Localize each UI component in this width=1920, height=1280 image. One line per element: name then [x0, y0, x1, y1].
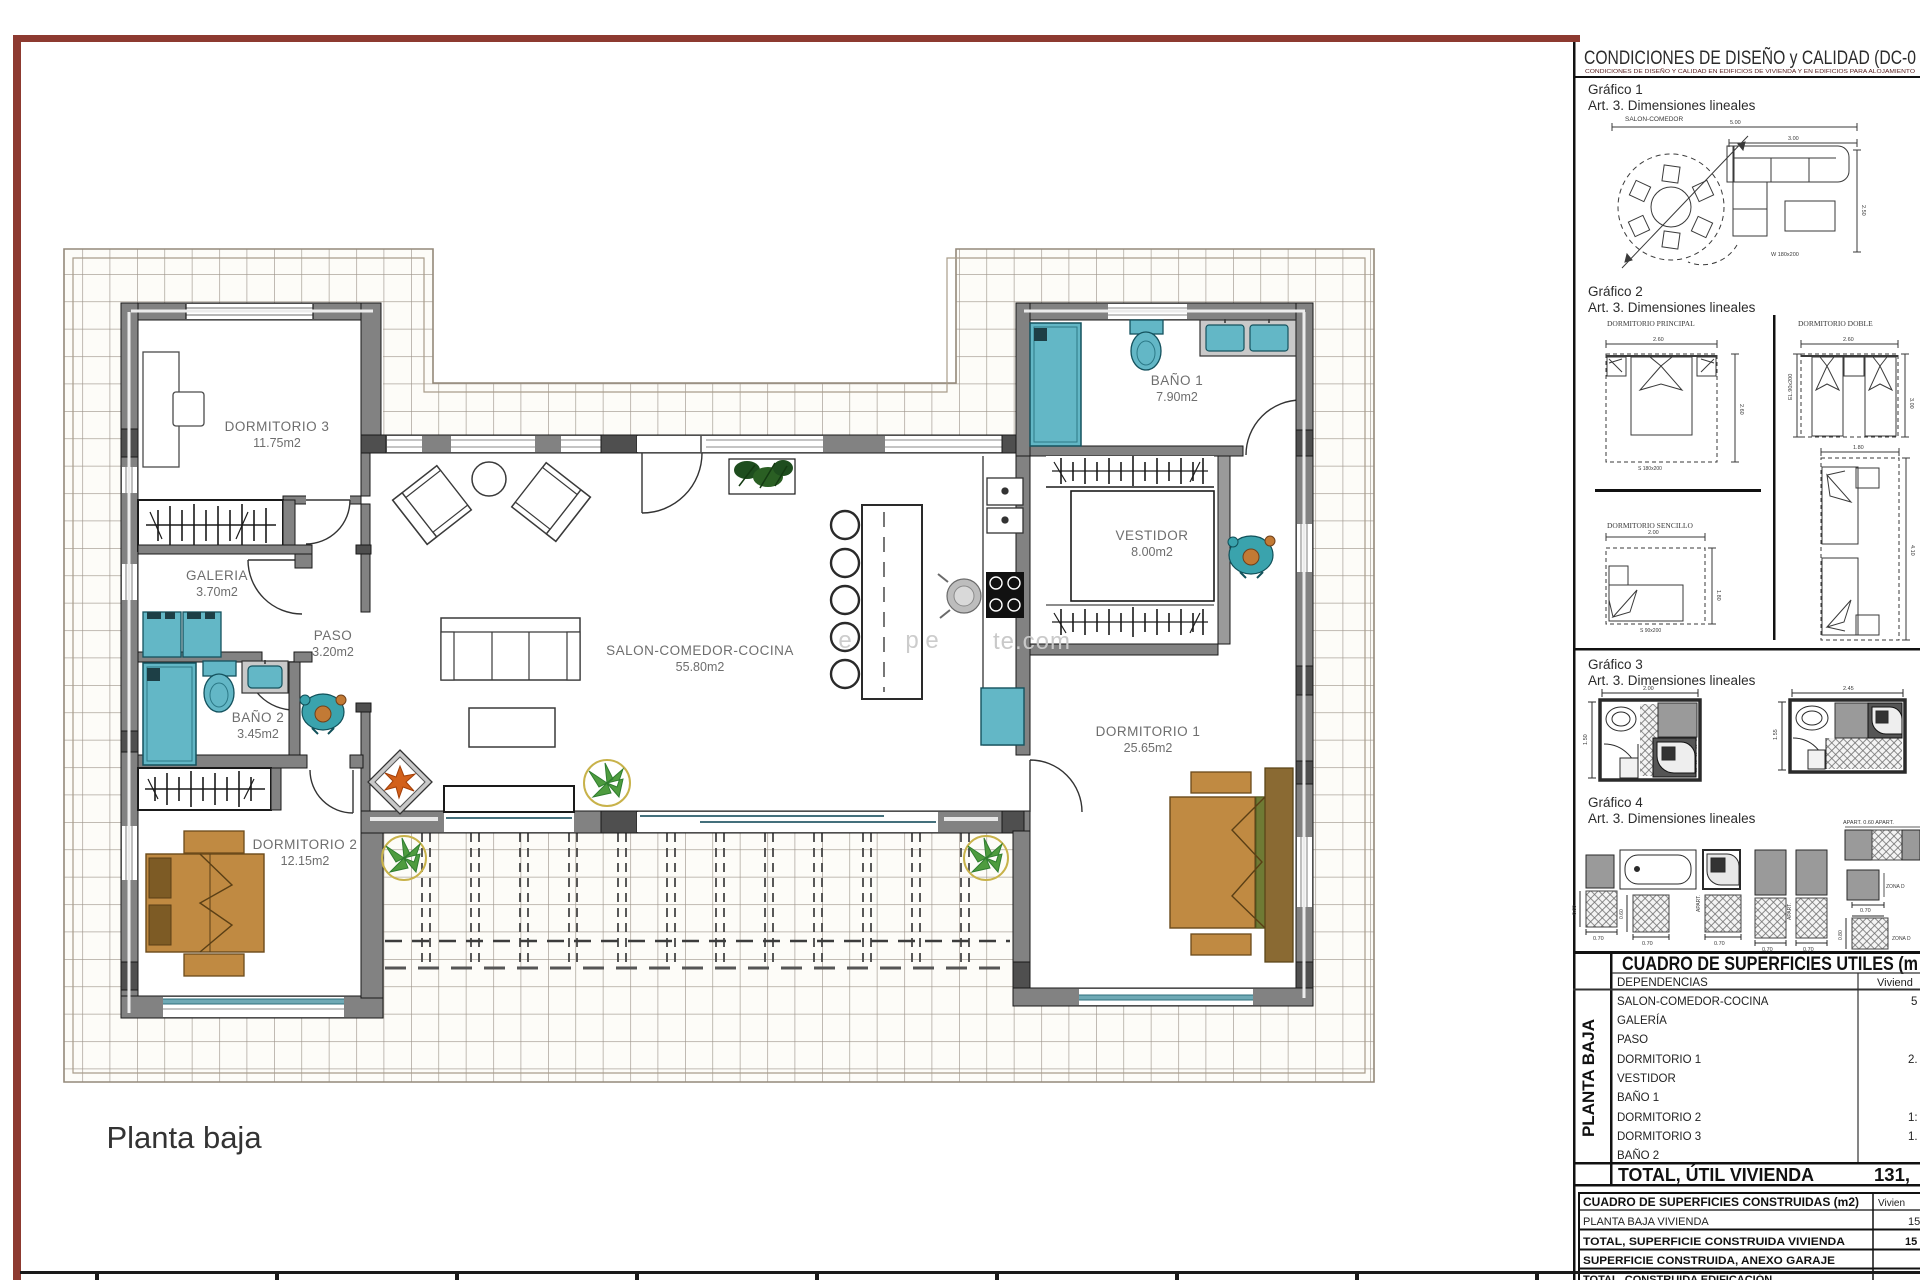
svg-text:BAÑO 1: BAÑO 1 — [1151, 373, 1204, 388]
svg-text:3.00: 3.00 — [1908, 398, 1914, 409]
svg-text:BAÑO 1: BAÑO 1 — [1617, 1091, 1659, 1104]
svg-text:TOTAL, CONSTRUIDA EDIFICACIÓN: TOTAL, CONSTRUIDA EDIFICACIÓN — [1583, 1273, 1772, 1280]
svg-text:DORMITORIO 2: DORMITORIO 2 — [253, 837, 358, 852]
svg-text:3.00: 3.00 — [1788, 136, 1799, 142]
svg-text:DEPENDENCIAS: DEPENDENCIAS — [1617, 977, 1708, 989]
svg-text:DORMITORIO SENCILLO: DORMITORIO SENCILLO — [1607, 521, 1693, 530]
svg-text:DORMITORIO 3: DORMITORIO 3 — [225, 419, 330, 434]
svg-text:APART.: APART. — [1696, 895, 1702, 912]
svg-text:e: e — [838, 627, 851, 654]
svg-text:Planta baja: Planta baja — [106, 1120, 262, 1155]
svg-text:8.00m2: 8.00m2 — [1131, 545, 1173, 559]
svg-text:1.55: 1.55 — [1773, 729, 1779, 740]
svg-text:BAÑO 2: BAÑO 2 — [232, 710, 285, 725]
svg-text:TOTAL, SUPERFICIE CONSTRUIDA V: TOTAL, SUPERFICIE CONSTRUIDA VIVIENDA — [1583, 1236, 1845, 1248]
svg-text:PLANTA BAJA VIVIENDA: PLANTA BAJA VIVIENDA — [1583, 1216, 1709, 1228]
svg-text:BAÑO 2: BAÑO 2 — [1617, 1149, 1659, 1162]
svg-text:1.: 1. — [1908, 1131, 1918, 1143]
svg-text:7.90m2: 7.90m2 — [1156, 390, 1198, 404]
svg-text:Gráfico 2: Gráfico 2 — [1588, 284, 1643, 299]
svg-text:ZONA D: ZONA D — [1886, 884, 1905, 890]
svg-text:ZONA D: ZONA D — [1892, 936, 1911, 942]
svg-text:PASO: PASO — [1617, 1034, 1648, 1046]
svg-text:25.65m2: 25.65m2 — [1124, 741, 1173, 755]
svg-text:S 180x200: S 180x200 — [1638, 466, 1662, 472]
svg-text:2.45: 2.45 — [1843, 686, 1854, 692]
svg-text:4.10: 4.10 — [1909, 545, 1915, 556]
svg-text:0.60: 0.60 — [1572, 905, 1578, 915]
svg-text:Art. 3. Dimensiones lineales: Art. 3. Dimensiones lineales — [1588, 98, 1756, 113]
svg-text:Vivien: Vivien — [1878, 1198, 1905, 1209]
svg-text:12.15m2: 12.15m2 — [281, 854, 330, 868]
svg-text:TOTAL, ÚTIL VIVIENDA: TOTAL, ÚTIL VIVIENDA — [1618, 1164, 1814, 1185]
svg-text:3.70m2: 3.70m2 — [196, 585, 238, 599]
svg-text:0.70: 0.70 — [1593, 936, 1604, 942]
svg-text:PLANTA BAJA: PLANTA BAJA — [1579, 1019, 1598, 1137]
svg-text:APART. 0.60 APART.: APART. 0.60 APART. — [1843, 820, 1894, 826]
svg-text:CUADRO DE SUPERFICIES CONSTRUI: CUADRO DE SUPERFICIES CONSTRUIDAS (m2) — [1583, 1197, 1859, 1209]
svg-text:DORMITORIO 1: DORMITORIO 1 — [1617, 1054, 1701, 1066]
svg-text:Art. 3. Dimensiones lineales: Art. 3. Dimensiones lineales — [1588, 811, 1756, 826]
svg-text:0.70: 0.70 — [1642, 941, 1653, 947]
svg-text:55.80m2: 55.80m2 — [676, 660, 725, 674]
svg-text:CONDICIONES DE DISEÑO y CALIDA: CONDICIONES DE DISEÑO y CALIDAD (DC-0 — [1584, 47, 1916, 69]
svg-text:EL.90x200: EL.90x200 — [1788, 374, 1794, 400]
svg-text:2.50: 2.50 — [1860, 205, 1866, 216]
svg-text:5.00: 5.00 — [1730, 120, 1741, 126]
svg-text:te.com: te.com — [993, 628, 1071, 655]
svg-text:2.00: 2.00 — [1643, 686, 1654, 692]
svg-text:1.80: 1.80 — [1715, 590, 1721, 601]
svg-text:0.80: 0.80 — [1838, 930, 1844, 940]
svg-text:2.: 2. — [1908, 1054, 1918, 1066]
svg-text:2.00: 2.00 — [1648, 530, 1659, 536]
svg-text:CUADRO DE SUPERFICIES UTILES (: CUADRO DE SUPERFICIES UTILES (m — [1622, 954, 1918, 975]
svg-text:SUPERFICIE CONSTRUIDA, ANEXO G: SUPERFICIE CONSTRUIDA, ANEXO GARAJE — [1583, 1255, 1835, 1267]
svg-text:SALON-COMEDOR: SALON-COMEDOR — [1625, 116, 1683, 123]
svg-text:PASO: PASO — [314, 628, 353, 643]
svg-text:DORMITORIO PRINCIPAL: DORMITORIO PRINCIPAL — [1607, 319, 1695, 328]
svg-text:2.60: 2.60 — [1843, 337, 1854, 343]
svg-text:0.60: 0.60 — [1619, 909, 1625, 919]
svg-text:0.70: 0.70 — [1714, 941, 1725, 947]
svg-text:Viviend: Viviend — [1877, 977, 1913, 989]
svg-text:11.75m2: 11.75m2 — [253, 436, 301, 450]
svg-text:S 90x200: S 90x200 — [1640, 628, 1661, 634]
svg-text:Art. 3. Dimensiones lineales: Art. 3. Dimensiones lineales — [1588, 300, 1756, 315]
svg-text:DORMITORIO DOBLE: DORMITORIO DOBLE — [1798, 319, 1873, 328]
svg-text:2.60: 2.60 — [1653, 337, 1664, 343]
svg-text:CONDICIONES DE DISEÑO Y CALIDA: CONDICIONES DE DISEÑO Y CALIDAD EN EDIFI… — [1585, 68, 1916, 75]
svg-text:5: 5 — [1911, 996, 1917, 1008]
svg-text:SALON-COMEDOR-COCINA: SALON-COMEDOR-COCINA — [1617, 996, 1769, 1008]
svg-text:Gráfico 1: Gráfico 1 — [1588, 82, 1643, 97]
svg-text:DORMITORIO 2: DORMITORIO 2 — [1617, 1112, 1701, 1124]
svg-text:DORMITORIO 1: DORMITORIO 1 — [1096, 724, 1201, 739]
svg-text:p e: p e — [905, 627, 938, 654]
svg-text:GALERÍA: GALERÍA — [1617, 1014, 1667, 1027]
svg-text:VESTIDOR: VESTIDOR — [1115, 528, 1188, 543]
svg-text:W 180x200: W 180x200 — [1771, 252, 1799, 258]
svg-text:3.20m2: 3.20m2 — [312, 645, 354, 659]
svg-text:0.70: 0.70 — [1860, 908, 1871, 914]
svg-text:1.80: 1.80 — [1853, 445, 1864, 451]
svg-text:APART.: APART. — [1787, 903, 1793, 920]
svg-text:1:: 1: — [1908, 1112, 1918, 1124]
svg-text:VESTIDOR: VESTIDOR — [1617, 1073, 1676, 1085]
svg-text:131,: 131, — [1874, 1164, 1910, 1185]
svg-text:3.45m2: 3.45m2 — [237, 727, 279, 741]
svg-text:15: 15 — [1905, 1236, 1917, 1248]
svg-text:2.60: 2.60 — [1738, 404, 1744, 415]
svg-text:SALON-COMEDOR-COCINA: SALON-COMEDOR-COCINA — [606, 643, 794, 658]
svg-text:DORMITORIO 3: DORMITORIO 3 — [1617, 1131, 1701, 1143]
svg-text:Gráfico 4: Gráfico 4 — [1588, 795, 1643, 810]
svg-text:15: 15 — [1908, 1216, 1920, 1228]
svg-text:GALERIA: GALERIA — [186, 568, 248, 583]
svg-text:Art. 3. Dimensiones lineales: Art. 3. Dimensiones lineales — [1588, 673, 1756, 688]
svg-text:Gráfico 3: Gráfico 3 — [1588, 657, 1643, 672]
svg-text:1.50: 1.50 — [1583, 734, 1589, 745]
